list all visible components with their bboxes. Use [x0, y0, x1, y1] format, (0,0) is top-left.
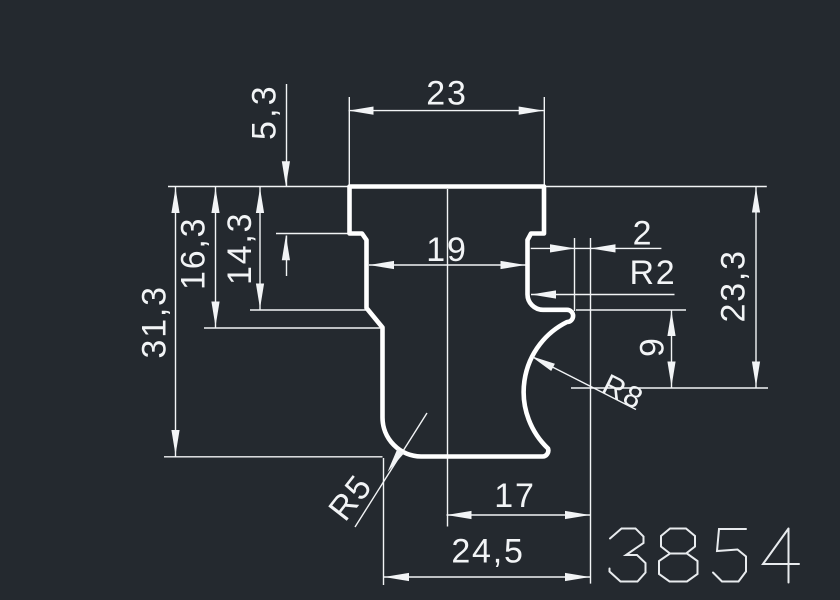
svg-text:14,3: 14,3 — [221, 212, 259, 285]
svg-text:17: 17 — [494, 477, 535, 515]
svg-text:5,3: 5,3 — [246, 83, 284, 140]
svg-text:19: 19 — [426, 231, 467, 269]
svg-text:R2: R2 — [629, 254, 676, 292]
svg-text:9: 9 — [634, 336, 672, 357]
svg-text:23,3: 23,3 — [715, 249, 753, 322]
svg-text:23: 23 — [426, 75, 467, 113]
svg-text:16,3: 16,3 — [175, 217, 213, 290]
svg-text:31,3: 31,3 — [136, 285, 174, 358]
svg-text:2: 2 — [633, 215, 654, 253]
svg-text:24,5: 24,5 — [451, 533, 524, 571]
